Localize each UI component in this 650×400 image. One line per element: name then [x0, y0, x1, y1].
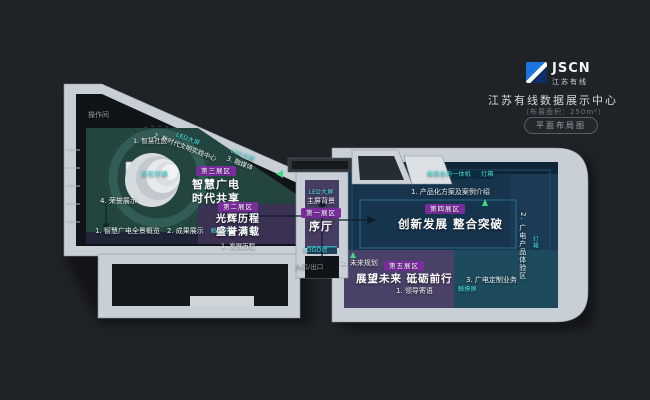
zone1-title-block: 第一展区 序厅 [296, 208, 346, 234]
zone3-title-block: 第三展区 智慧广电 时代共享 [183, 166, 249, 206]
brand-name-cn: 江苏有线 [552, 77, 591, 87]
jscn-logo-icon [526, 62, 547, 83]
brand-block: JSCN 江苏有线 [526, 62, 591, 87]
zone4-title-block: 第四展区 创新发展 整合突破 [398, 204, 492, 232]
zone3-title-line1: 智慧广电 [183, 178, 249, 192]
zone1-logo-wall-tag: LOGO墙 [303, 247, 328, 255]
zone1-name: 序厅 [296, 220, 346, 234]
zone1-badge: 第一展区 [301, 208, 341, 218]
entrance-exit-label: 入口/出口 [295, 263, 323, 271]
zone1-led-screen-tag: LED大屏 [296, 189, 346, 197]
zone1-screen-block: LED大屏 主屏背景 [296, 189, 346, 205]
zone4-item-solutions: 1. 产品化方案及案例介绍 [411, 188, 490, 197]
zone5-item-leader-message: 1. 领导寄语 [396, 287, 433, 296]
zone2-badge: 第二展区 [218, 202, 258, 212]
zone4-title: 创新发展 整合突破 [398, 217, 492, 231]
zone4-lightbox-tag: 灯箱 [481, 171, 494, 179]
zone4-touch-kiosk-tag: 触摸查询一体机 [427, 171, 471, 179]
zone2-title-block: 第二展区 光辉历程 盛誉满载 1. 发展历程 [208, 202, 268, 250]
zone3-item-panorama: 1. 智慧广电全景概览 [95, 227, 160, 236]
lower-annex [98, 254, 300, 318]
zone5-badge: 第五展区 [384, 261, 424, 271]
exhibition-floor-plan-view: JSCN 江苏有线 江苏有线数据展示中心 （布展面积：250m²） 平面布局图 … [0, 0, 650, 400]
zone3-ring-screen-label: 异形环幕 [141, 170, 168, 178]
zone4-item2-lightbox-tag: 灯箱 [531, 236, 538, 249]
zone5-item3-touchscreen-tag: 触摸屏 [458, 286, 477, 294]
zone2-title-line1: 光辉历程 [208, 214, 268, 227]
zone3-item-honor-display: 4. 荣誉展示 [100, 197, 137, 206]
page-title: 江苏有线数据展示中心 [488, 92, 618, 108]
zone2-title-line2: 盛誉满载 [208, 227, 268, 240]
area-note: （布展面积：250m²） [522, 107, 606, 117]
zone4-equipment-tags: 触摸查询一体机 灯箱 [427, 171, 494, 179]
zone3-item-achievements: 2. 成果展示 [167, 227, 204, 236]
brand-name: JSCN [552, 62, 591, 75]
zone4-badge: 第四展区 [425, 204, 465, 214]
zone2-item-history: 1. 发展历程 [208, 242, 268, 250]
zone1-main-screen-label: 主屏背景 [296, 197, 346, 206]
floor-plan-view-button[interactable]: 平面布局图 [524, 117, 598, 134]
zone4-item-product-experience: 2. 广电产品体验区 [518, 212, 527, 280]
zone5-title-block: 第五展区 展望未来 砥砺前行 [356, 261, 452, 286]
zone5-title: 展望未来 砥砺前行 [356, 273, 452, 286]
zone5-item-custom-services: 3. 广电定制业务 [466, 276, 517, 285]
operation-room-label: 操作间 [88, 111, 109, 120]
zone3-badge: 第三展区 [196, 166, 236, 176]
